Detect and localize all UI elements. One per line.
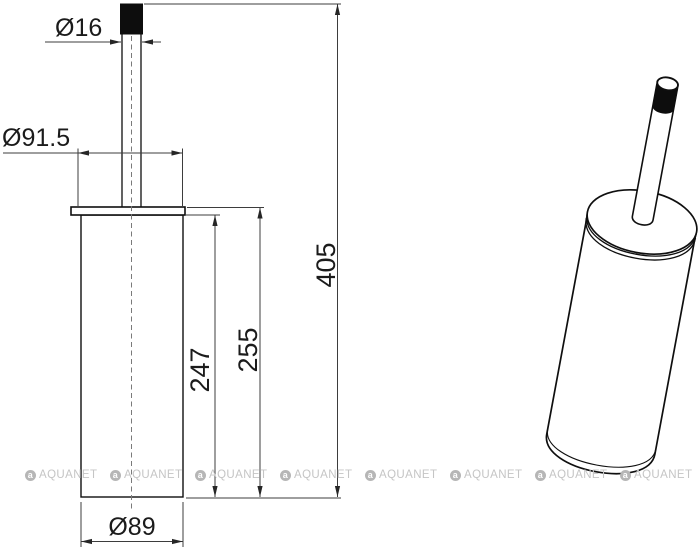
aquanet-logo-icon: [110, 470, 121, 481]
watermark: AQUANET: [535, 469, 607, 481]
watermark-text: AQUANET: [379, 469, 437, 481]
drawing-linework: [0, 0, 700, 550]
dim-label-handle-diameter: Ø16: [55, 15, 102, 41]
dim-label-body-with-lid-height: 255: [234, 290, 266, 410]
watermark-text: AQUANET: [209, 469, 267, 481]
watermark: AQUANET: [110, 469, 182, 481]
technical-drawing-canvas: Ø16 Ø91.5 247 255 405 Ø89 AQUANET AQUANE…: [0, 0, 700, 550]
watermark-text: AQUANET: [39, 469, 97, 481]
dim-label-body-diameter: Ø89: [72, 514, 192, 540]
watermark: AQUANET: [195, 469, 267, 481]
watermark: AQUANET: [450, 469, 522, 481]
aquanet-logo-icon: [620, 470, 631, 481]
watermark: AQUANET: [280, 469, 352, 481]
dim-label-lid-diameter: Ø91.5: [2, 125, 70, 151]
watermark-text: AQUANET: [549, 469, 607, 481]
aquanet-logo-icon: [195, 470, 206, 481]
iso-view-linework: [541, 68, 700, 482]
watermark: AQUANET: [620, 469, 692, 481]
watermark: AQUANET: [365, 469, 437, 481]
aquanet-logo-icon: [450, 470, 461, 481]
watermark-text: AQUANET: [464, 469, 522, 481]
dim-label-body-height: 247: [186, 310, 218, 430]
aquanet-logo-icon: [365, 470, 376, 481]
front-view-linework: [71, 4, 185, 509]
dim-label-total-height: 405: [312, 205, 344, 325]
watermark-row: AQUANET AQUANET AQUANET AQUANET AQUANET …: [0, 469, 700, 487]
aquanet-logo-icon: [25, 470, 36, 481]
watermark-text: AQUANET: [634, 469, 692, 481]
aquanet-logo-icon: [535, 470, 546, 481]
watermark: AQUANET: [25, 469, 97, 481]
watermark-text: AQUANET: [124, 469, 182, 481]
watermark-text: AQUANET: [294, 469, 352, 481]
aquanet-logo-icon: [280, 470, 291, 481]
